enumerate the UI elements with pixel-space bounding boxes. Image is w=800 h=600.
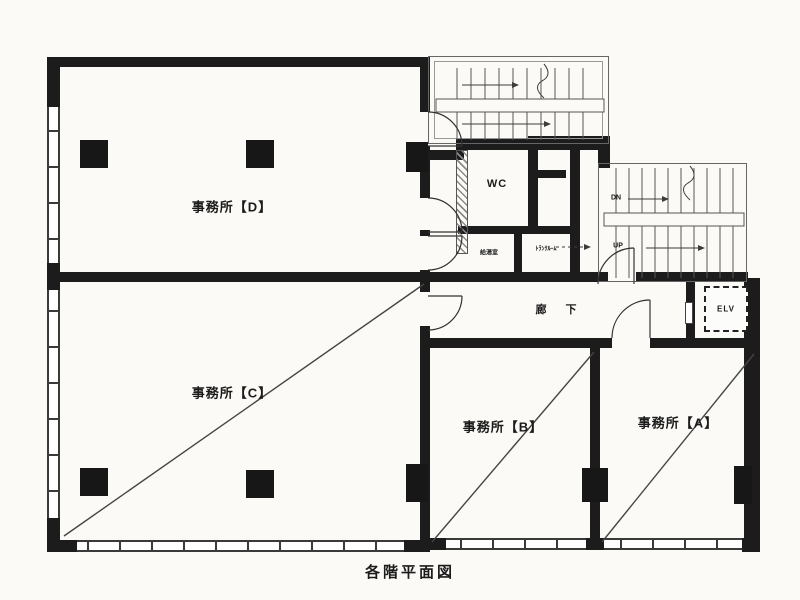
column (406, 464, 428, 502)
wall-top (55, 57, 430, 67)
elv-door (685, 302, 693, 324)
stair-top (429, 57, 609, 144)
column (406, 142, 428, 172)
wall-divider-d-c (55, 272, 430, 282)
wc-label: WC (487, 178, 507, 190)
plan-caption: 各階平面図 (365, 561, 455, 582)
column (80, 468, 108, 496)
storage-label: ﾄﾗﾝｸﾙｰﾑ (535, 244, 556, 253)
column (734, 466, 752, 504)
column (246, 470, 274, 498)
office-d-label: 事務所【D】 (192, 197, 272, 216)
wall-corridor-top (428, 272, 608, 282)
window-band-bottom-left (57, 540, 420, 552)
wall-segment (55, 540, 77, 552)
column (80, 140, 108, 168)
column (246, 140, 274, 168)
wall-segment (420, 230, 430, 236)
wall-wc-stall (538, 170, 566, 178)
column (582, 468, 608, 502)
corridor-label: 廊 下 (535, 301, 584, 317)
plan-linework (0, 0, 800, 600)
office-c-label: 事務所【C】 (192, 383, 272, 402)
wall-segment (598, 148, 610, 168)
wall-kitchenette-divider (514, 226, 522, 272)
wall-segment (420, 326, 430, 552)
wall-wc-right (570, 148, 580, 272)
office-a-label: 事務所【A】 (638, 413, 718, 432)
hatched-partition (456, 150, 468, 254)
stair-right (599, 164, 747, 282)
window-band-left (47, 60, 60, 552)
wall-right-lower (744, 338, 760, 552)
floor-plan: 事務所【D】 事務所【C】 事務所【B】 事務所【A】 WC 廊 下 ELV 給… (0, 0, 800, 600)
stair-up-label: UP (613, 243, 623, 250)
office-b-label: 事務所【B】 (463, 417, 543, 436)
stair-down-label: DN (611, 195, 621, 202)
kitchenette-label: 給湯室 (480, 248, 498, 257)
wall-corridor-bottom (428, 338, 612, 348)
wall-divider-b-a (590, 348, 600, 548)
wall-segment (420, 57, 430, 112)
wall-segment (430, 538, 446, 550)
elevator-label: ELV (717, 305, 735, 314)
wall-wc-partition (528, 148, 538, 228)
